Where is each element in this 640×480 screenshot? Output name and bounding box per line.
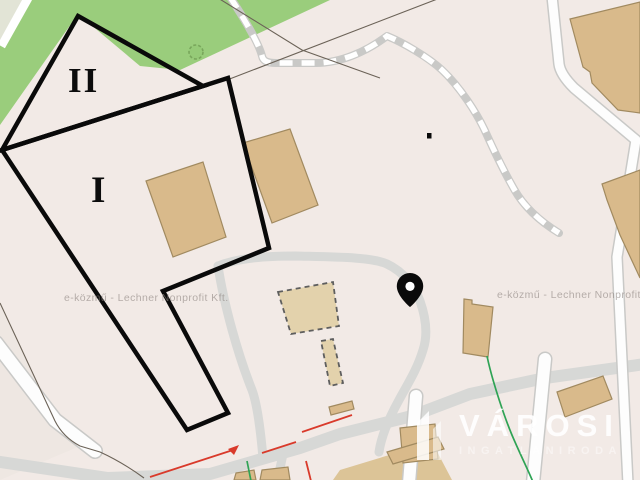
- red-arrowhead: [228, 445, 239, 455]
- building-planned: [278, 282, 339, 334]
- brand-logo-subtitle: INGATLANIRODA: [459, 446, 622, 457]
- building: [243, 129, 318, 223]
- watermark-left: e-közmű - Lechner Nonprofit Kft.: [64, 292, 229, 304]
- brand-logo-title: VÁROSI: [459, 410, 622, 441]
- building: [260, 467, 290, 480]
- map-canvas[interactable]: II I e-közmű - Lechner Nonprofit Kft. e-…: [0, 0, 640, 480]
- building-planned: [321, 339, 343, 386]
- zone-label-secondary: II: [68, 63, 99, 98]
- building: [329, 401, 354, 415]
- building: [463, 299, 493, 357]
- brand-logo-text: VÁROSI INGATLANIRODA: [459, 410, 622, 457]
- building: [146, 162, 226, 257]
- brand-building-icon: [404, 398, 446, 468]
- parcel-outline-I: [2, 78, 269, 430]
- map-dot: [427, 133, 432, 139]
- brand-logo: VÁROSI INGATLANIRODA: [404, 398, 622, 468]
- tree-icon: [189, 45, 203, 59]
- zone-label-primary: I: [91, 172, 105, 209]
- watermark-right: e-közmű - Lechner Nonprofit Kft.: [497, 289, 640, 301]
- parcel-outlines: [2, 16, 269, 430]
